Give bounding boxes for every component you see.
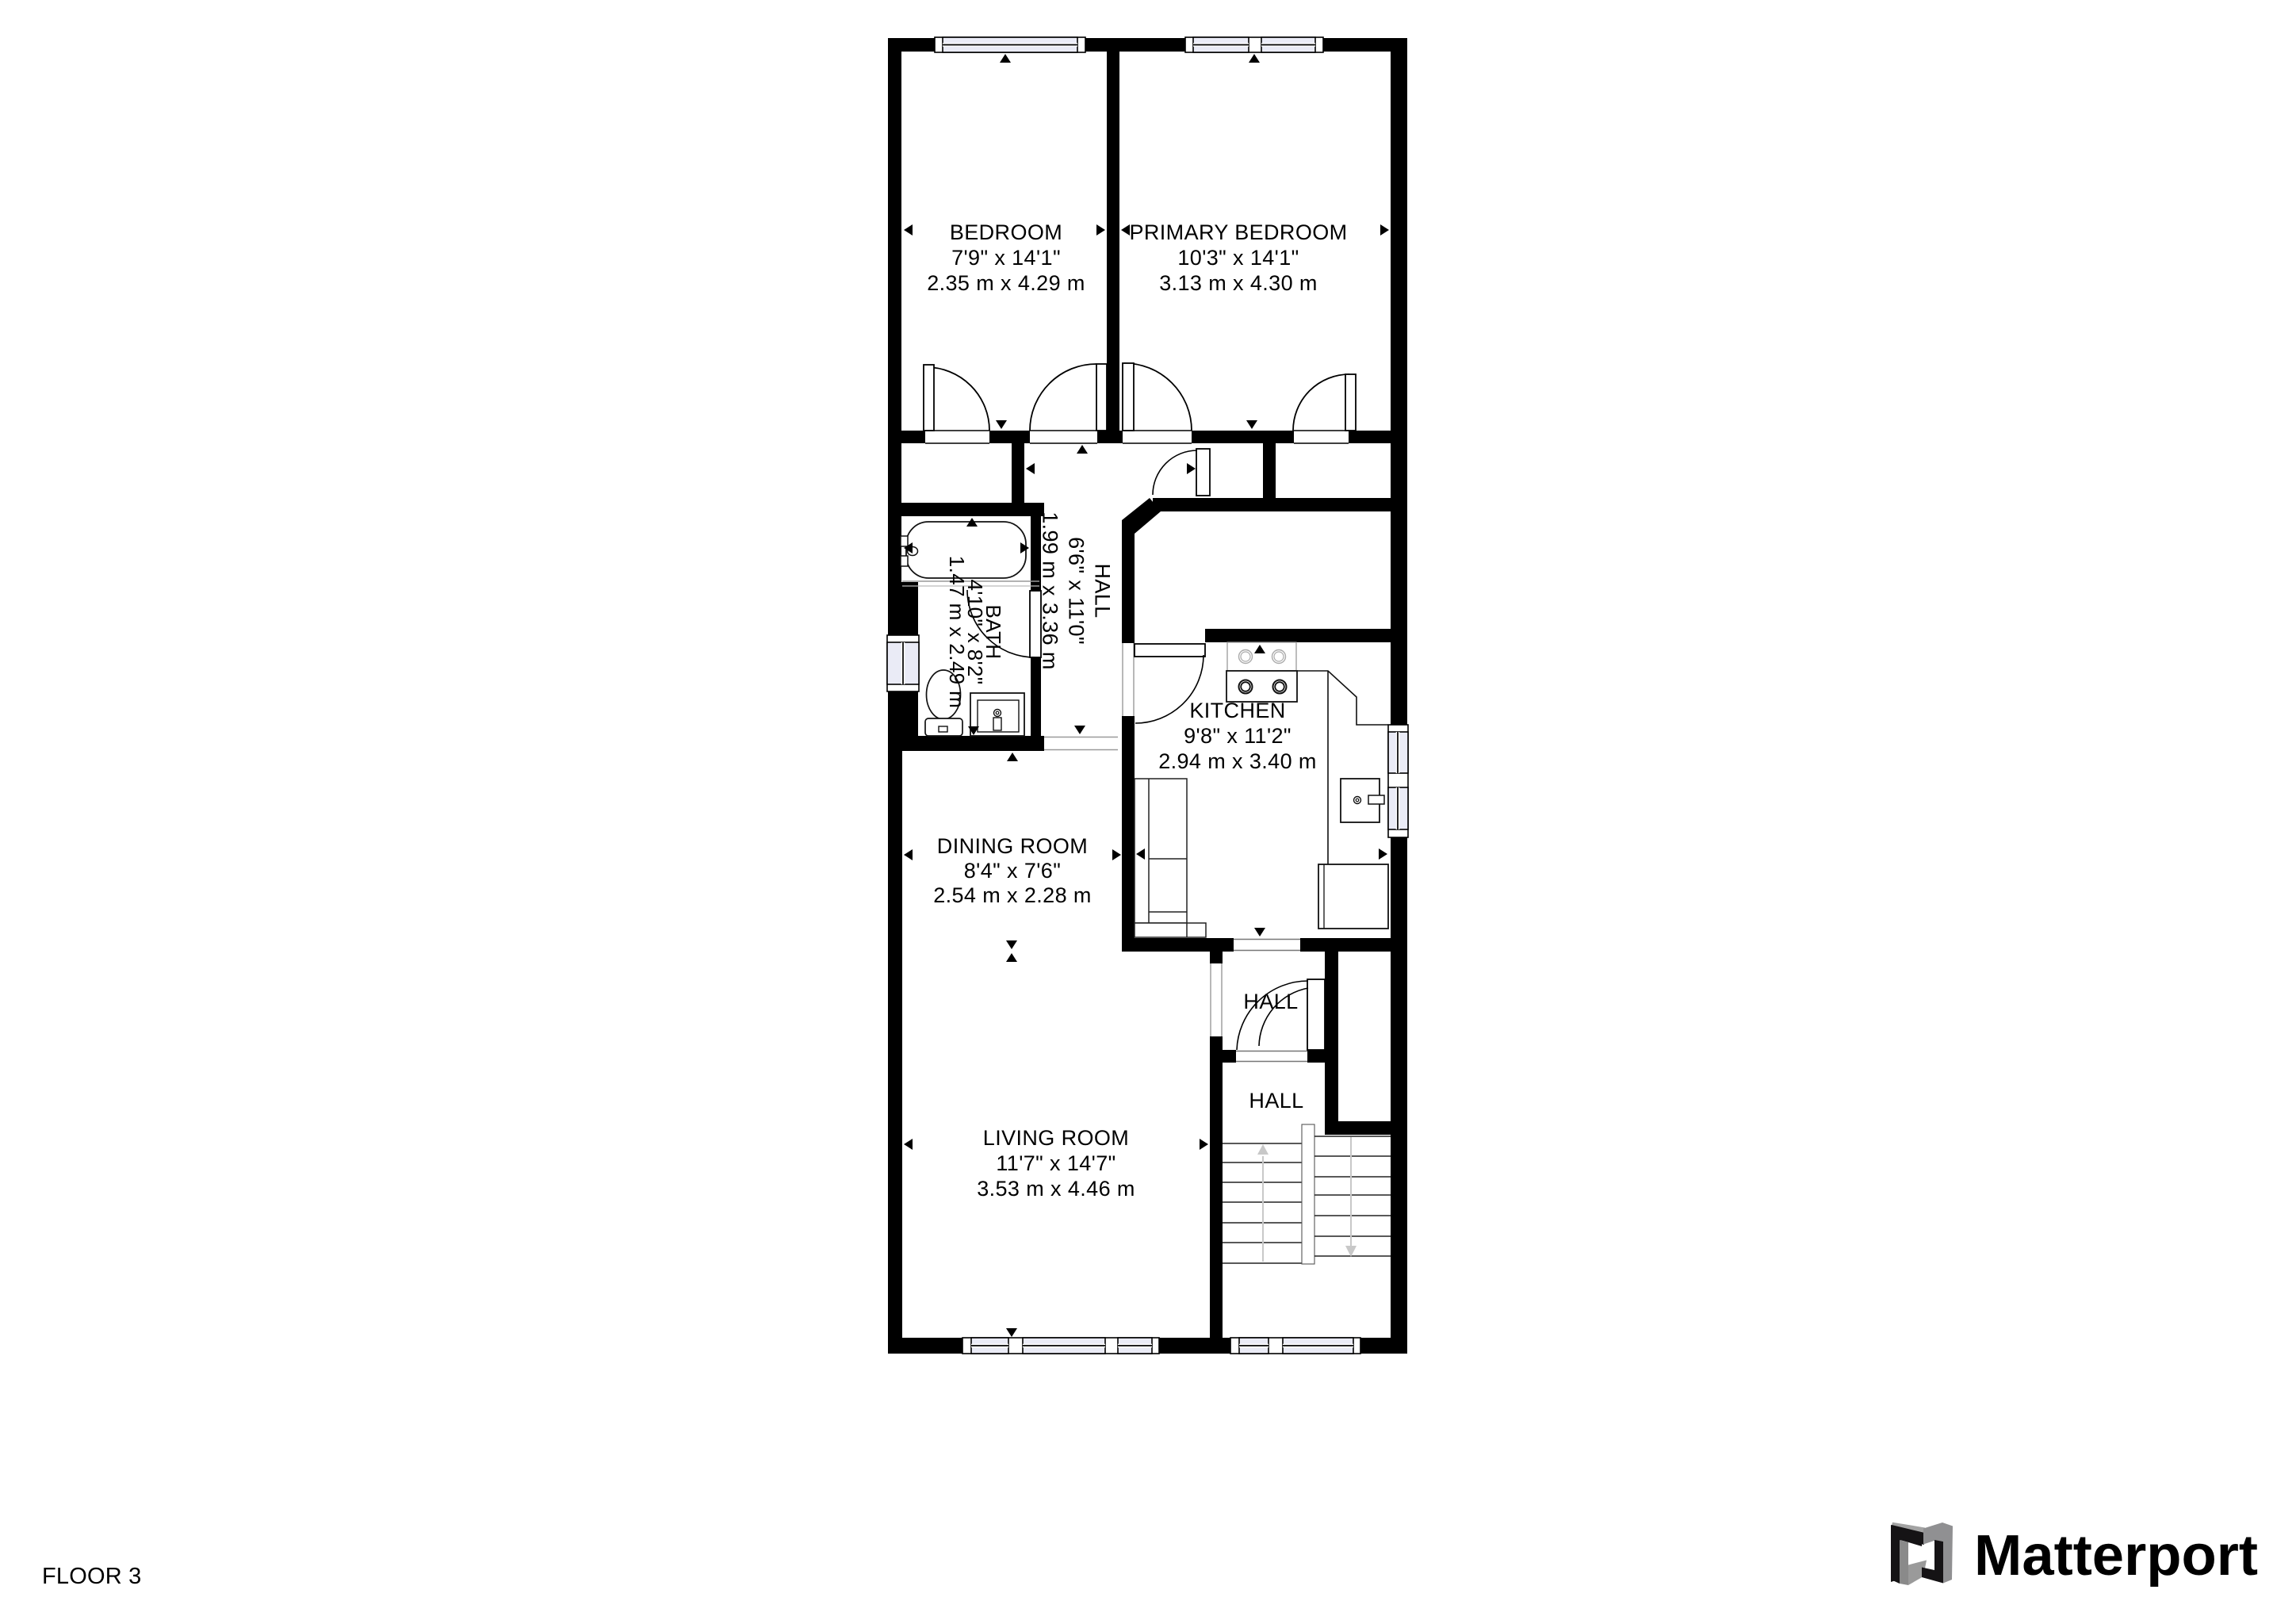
svg-text:HALL: HALL xyxy=(1091,563,1115,618)
svg-text:PRIMARY BEDROOM: PRIMARY BEDROOM xyxy=(1129,220,1347,244)
svg-text:8'4" x 7'6": 8'4" x 7'6" xyxy=(964,859,1061,883)
svg-text:BEDROOM: BEDROOM xyxy=(950,220,1062,244)
svg-text:9'8" x 11'2": 9'8" x 11'2" xyxy=(1184,724,1291,748)
svg-text:2.35 m x 4.29 m: 2.35 m x 4.29 m xyxy=(927,271,1085,295)
svg-text:FLOOR 3: FLOOR 3 xyxy=(42,1564,142,1589)
svg-text:2.94 m x 3.40 m: 2.94 m x 3.40 m xyxy=(1158,749,1317,773)
svg-text:KITCHEN: KITCHEN xyxy=(1189,699,1285,722)
svg-text:3.13 m x 4.30 m: 3.13 m x 4.30 m xyxy=(1159,271,1318,295)
svg-text:1.99 m x 3.36 m: 1.99 m x 3.36 m xyxy=(1039,511,1062,670)
svg-text:HALL: HALL xyxy=(1243,990,1298,1013)
svg-text:6'6" x 11'0": 6'6" x 11'0" xyxy=(1065,537,1089,645)
svg-text:HALL: HALL xyxy=(1249,1089,1303,1113)
svg-text:7'9" x 14'1": 7'9" x 14'1" xyxy=(951,246,1061,270)
svg-text:11'7" x 14'7": 11'7" x 14'7" xyxy=(996,1151,1115,1175)
svg-text:DINING ROOM: DINING ROOM xyxy=(937,834,1088,858)
svg-text:Matterport: Matterport xyxy=(1974,1524,2258,1588)
svg-text:10'3" x 14'1": 10'3" x 14'1" xyxy=(1177,246,1299,270)
svg-text:3.53 m x 4.46 m: 3.53 m x 4.46 m xyxy=(977,1177,1135,1201)
svg-text:1.47 m x 2.49 m: 1.47 m x 2.49 m xyxy=(945,556,969,708)
svg-text:LIVING ROOM: LIVING ROOM xyxy=(983,1126,1129,1150)
svg-text:2.54 m x 2.28 m: 2.54 m x 2.28 m xyxy=(933,883,1092,907)
